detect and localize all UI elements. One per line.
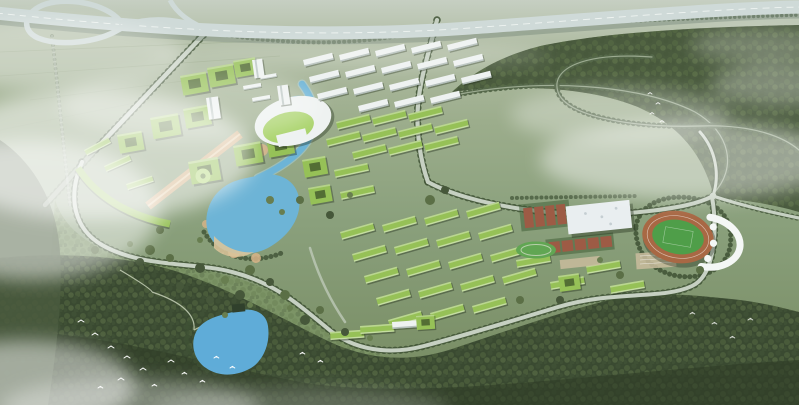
tree bbox=[287, 305, 293, 311]
tree bbox=[166, 254, 174, 262]
rendering-canvas bbox=[0, 0, 799, 405]
basketball-court bbox=[600, 236, 612, 248]
tree bbox=[222, 312, 228, 318]
basketball-court bbox=[587, 237, 599, 249]
tree bbox=[266, 278, 274, 286]
tree bbox=[245, 265, 255, 275]
tree bbox=[206, 296, 214, 304]
tree bbox=[696, 266, 704, 274]
tree bbox=[235, 290, 245, 300]
tree bbox=[195, 263, 205, 273]
tree bbox=[326, 211, 334, 219]
lake-pavilion bbox=[232, 303, 246, 312]
tree bbox=[136, 258, 144, 266]
tree bbox=[247, 302, 253, 308]
tree bbox=[145, 245, 155, 255]
tree bbox=[425, 195, 435, 205]
basketball-court bbox=[574, 238, 586, 250]
tree bbox=[556, 296, 564, 304]
tree bbox=[197, 237, 203, 243]
u-shaped-dormitory bbox=[558, 273, 582, 294]
tree bbox=[221, 276, 229, 284]
tree bbox=[176, 282, 184, 290]
tree bbox=[341, 328, 349, 336]
tree bbox=[156, 226, 164, 234]
courtyard-building bbox=[416, 315, 436, 332]
tree bbox=[296, 196, 304, 204]
tree bbox=[516, 296, 524, 304]
cloud-patch bbox=[510, 87, 730, 143]
tree bbox=[441, 186, 449, 194]
lake-island bbox=[266, 196, 274, 204]
basketball-court bbox=[561, 240, 573, 252]
tree bbox=[280, 290, 290, 300]
aerial-campus-rendering bbox=[0, 0, 799, 405]
haze-streak bbox=[150, 41, 550, 69]
tree bbox=[316, 306, 324, 314]
tree bbox=[347, 192, 353, 198]
tree bbox=[300, 315, 310, 325]
tree bbox=[597, 257, 603, 263]
plaza-circle bbox=[251, 253, 261, 263]
tree bbox=[367, 335, 373, 341]
lake-island bbox=[279, 209, 285, 215]
tree bbox=[616, 271, 624, 279]
